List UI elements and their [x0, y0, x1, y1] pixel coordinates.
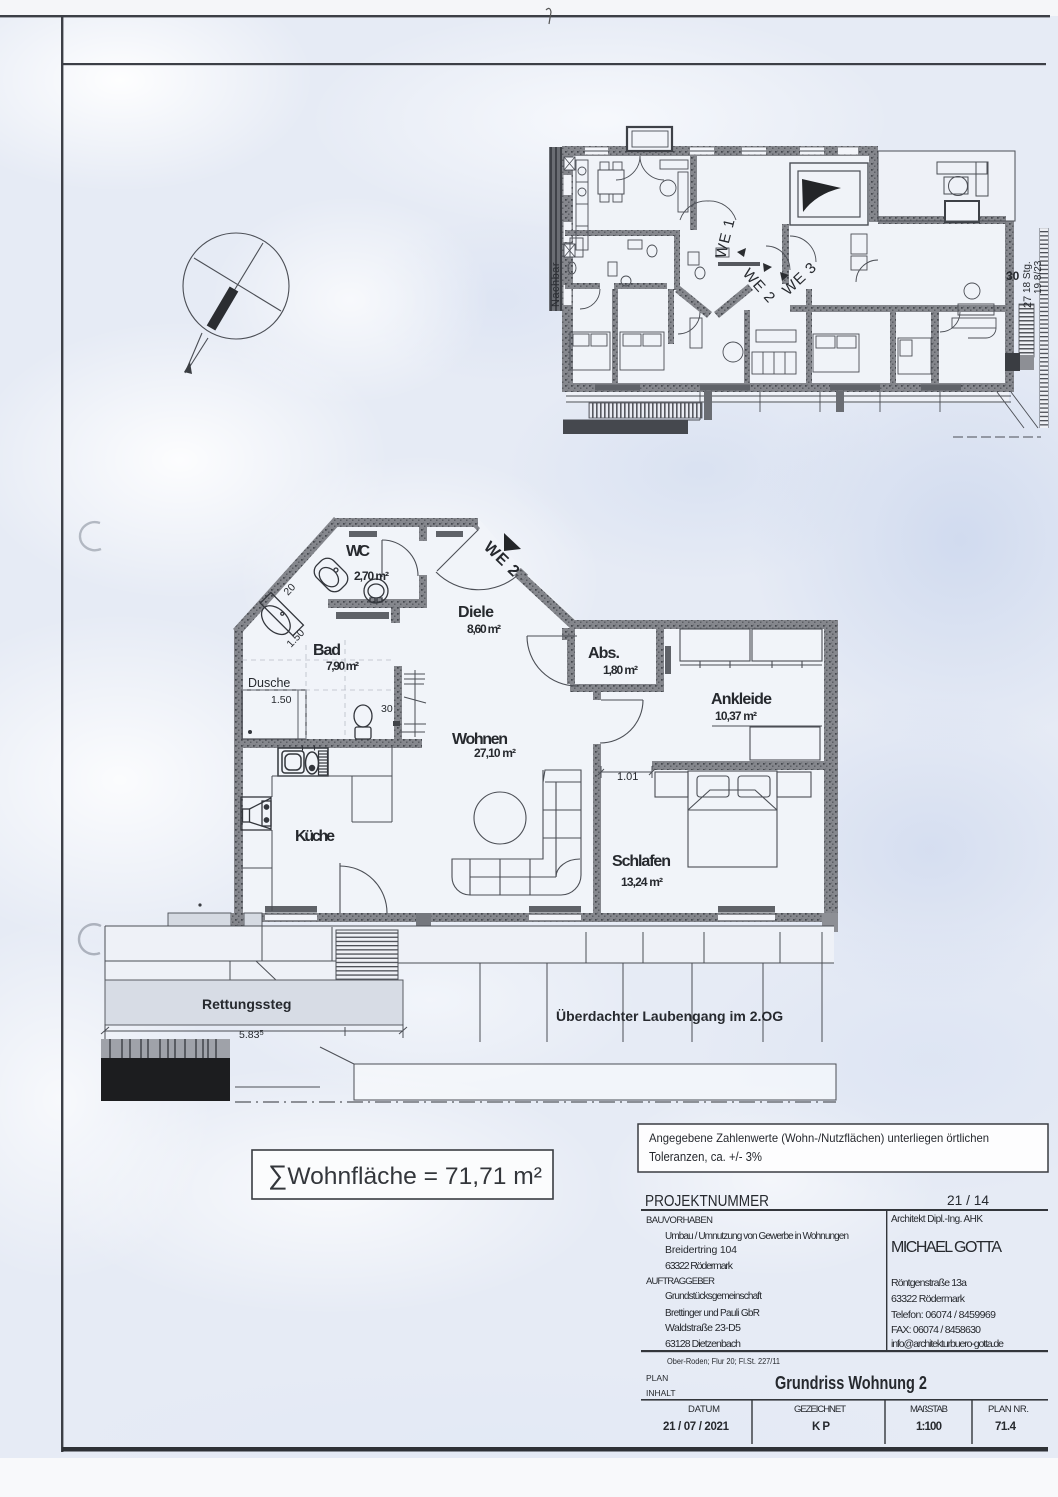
svg-text:2,70 m²: 2,70 m² — [354, 569, 389, 583]
svg-text:DATUM: DATUM — [688, 1404, 720, 1415]
svg-text:MICHAEL GOTTA: MICHAEL GOTTA — [891, 1239, 1002, 1256]
svg-text:Bad: Bad — [313, 642, 341, 659]
svg-text:63322 Rödermark: 63322 Rödermark — [665, 1260, 734, 1272]
svg-text:63128 Dietzenbach: 63128 Dietzenbach — [665, 1338, 741, 1350]
svg-text:info@architekturbuero-gotta.de: info@architekturbuero-gotta.de — [891, 1338, 1004, 1350]
svg-text:∑Wohnfläche = 71,71 m²: ∑Wohnfläche = 71,71 m² — [268, 1160, 542, 1190]
svg-text:Breidertring 104: Breidertring 104 — [665, 1244, 737, 1256]
svg-text:KP: KP — [812, 1421, 830, 1433]
svg-text:5.835: 5.835 — [239, 1028, 264, 1041]
svg-text:Grundstücksgemeinschaft: Grundstücksgemeinschaft — [665, 1291, 762, 1302]
svg-text:FAX: 06074 / 8458630: FAX: 06074 / 8458630 — [891, 1324, 981, 1336]
svg-text:Röntgenstraße 13a: Röntgenstraße 13a — [891, 1277, 967, 1289]
svg-text:21 / 07 / 2021: 21 / 07 / 2021 — [663, 1421, 730, 1433]
svg-text:30: 30 — [381, 703, 393, 715]
svg-text:GEZEICHNET: GEZEICHNET — [794, 1404, 846, 1415]
svg-text:Umbau / Umnutzung von Gewerbe: Umbau / Umnutzung von Gewerbe in Wohnung… — [665, 1231, 849, 1242]
svg-text:Dusche: Dusche — [248, 676, 290, 690]
svg-text:Telefon: 06074 / 8459969: Telefon: 06074 / 8459969 — [891, 1309, 996, 1321]
svg-text:Küche: Küche — [295, 828, 335, 845]
svg-text:27,10 m²: 27,10 m² — [474, 746, 516, 760]
svg-text:1.50: 1.50 — [271, 694, 292, 706]
svg-text:Toleranzen, ca. +/- 3%: Toleranzen, ca. +/- 3% — [649, 1150, 762, 1164]
svg-text:Überdachter Laubengang im 2.OG: Überdachter Laubengang im 2.OG — [556, 1008, 783, 1024]
svg-text:30: 30 — [1006, 269, 1020, 283]
svg-text:19 8/23: 19 8/23 — [1033, 260, 1044, 294]
svg-text:1,80 m²: 1,80 m² — [603, 663, 638, 677]
svg-text:13,24 m²: 13,24 m² — [621, 875, 663, 889]
svg-text:21 / 14: 21 / 14 — [947, 1192, 989, 1208]
svg-text:1.01: 1.01 — [617, 771, 638, 783]
svg-text:Brettinger und Pauli GbR: Brettinger und Pauli GbR — [665, 1308, 760, 1319]
svg-text:Grundriss Wohnung 2: Grundriss Wohnung 2 — [775, 1373, 927, 1393]
svg-text:18 Stg.: 18 Stg. — [1022, 261, 1033, 293]
svg-text:BAUVORHABEN: BAUVORHABEN — [646, 1215, 713, 1226]
svg-text:WC: WC — [346, 543, 370, 560]
svg-text:Waldstraße 23-D5: Waldstraße 23-D5 — [665, 1322, 741, 1334]
svg-text:71.4: 71.4 — [995, 1421, 1017, 1433]
svg-text:AUFTRAGGEBER: AUFTRAGGEBER — [646, 1276, 715, 1287]
svg-text:Architekt Dipl.-Ing. AHK: Architekt Dipl.-Ing. AHK — [891, 1214, 983, 1225]
svg-text:Ober-Roden; Flur 20; Fl.St. 22: Ober-Roden; Flur 20; Fl.St. 227/11 — [667, 1356, 780, 1366]
svg-text:PROJEKTNUMMER: PROJEKTNUMMER — [645, 1193, 769, 1210]
svg-text:27: 27 — [1022, 296, 1034, 308]
svg-text:Schlafen: Schlafen — [612, 853, 671, 870]
svg-text:63322 Rödermark: 63322 Rödermark — [891, 1293, 966, 1305]
svg-text:10,37 m²: 10,37 m² — [715, 709, 757, 723]
svg-text:8,60 m²: 8,60 m² — [467, 622, 501, 636]
svg-text:Abs.: Abs. — [588, 645, 620, 662]
svg-text:INHALT: INHALT — [646, 1388, 676, 1398]
svg-text:PLAN: PLAN — [646, 1373, 668, 1383]
svg-text:PLAN NR.: PLAN NR. — [988, 1404, 1029, 1415]
svg-text:Diele: Diele — [458, 604, 494, 621]
svg-text:Rettungssteg: Rettungssteg — [202, 996, 291, 1012]
svg-text:1:100: 1:100 — [916, 1421, 942, 1433]
svg-text:Angegebene Zahlenwerte (Wohn-/: Angegebene Zahlenwerte (Wohn-/Nutzfläche… — [649, 1131, 989, 1145]
svg-text:Nachbar: Nachbar — [550, 262, 562, 307]
svg-text:MAßSTAB: MAßSTAB — [910, 1404, 948, 1415]
svg-text:7,90 m²: 7,90 m² — [326, 659, 359, 673]
svg-text:Ankleide: Ankleide — [711, 691, 772, 708]
